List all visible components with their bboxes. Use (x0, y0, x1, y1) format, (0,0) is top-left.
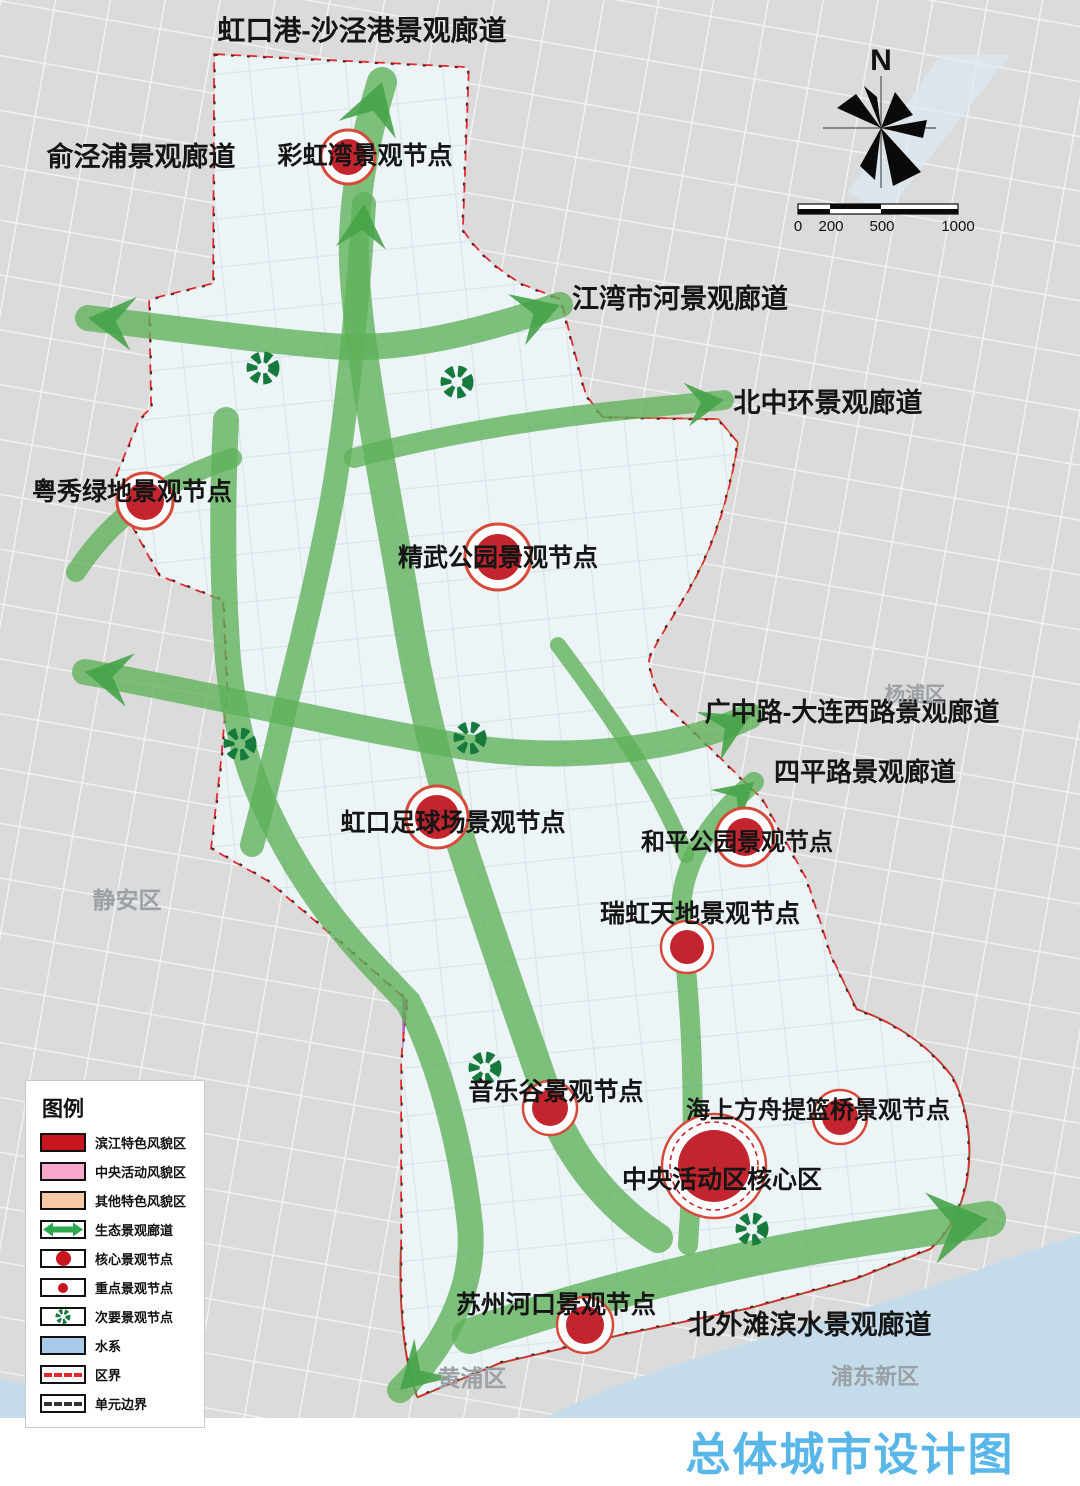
label-node-caihongwan: 彩虹湾景观节点 (277, 141, 452, 170)
label-node-ruihong: 瑞虹天地景观节点 (600, 899, 800, 928)
core-node-icon (56, 1251, 71, 1266)
water-swatch (40, 1336, 86, 1355)
label-node-yinyuegu: 音乐谷景观节点 (468, 1077, 643, 1106)
riverside-zone-swatch (40, 1133, 86, 1152)
label-node-heping-park: 和平公园景观节点 (641, 829, 833, 856)
legend-item-eco-corridor: 生态景观廊道 (40, 1220, 196, 1239)
label-node-hongkou-stadium: 虹口足球场景观节点 (340, 808, 565, 837)
label-node-yuexiu: 粤秀绿地景观节点 (32, 477, 232, 506)
page: 虹口港-沙泾港景观廊道 俞泾浦景观廊道 彩虹湾景观节点 江湾市河景观廊道 北中环… (0, 0, 1080, 1486)
key-node-swatch (40, 1278, 86, 1297)
eco-corridor-swatch (40, 1220, 86, 1239)
label-district-huangpu: 黄浦区 (438, 1365, 507, 1391)
legend-title: 图例 (42, 1093, 196, 1123)
compass-north-label: N (870, 44, 892, 77)
legend-item-riverside-zone: 滨江特色风貌区 (40, 1133, 196, 1152)
label-corridor-beizhonghuan: 北中环景观廊道 (734, 387, 923, 418)
legend-item-water: 水系 (40, 1336, 196, 1355)
legend-item-core-node: 核心景观节点 (40, 1249, 196, 1268)
minor-node-swatch (40, 1307, 86, 1326)
label-corridor-siping: 四平路景观廊道 (774, 757, 956, 787)
district-boundary-swatch (40, 1365, 86, 1384)
label-district-yangpu: 杨浦区 (885, 682, 945, 706)
node-ruihong (661, 921, 713, 973)
scale-tick-0: 0 (794, 218, 802, 235)
legend-item-other-zone: 其他特色风貌区 (40, 1191, 196, 1210)
legend-item-label: 中央活动风貌区 (95, 1162, 186, 1181)
legend-item-central-zone: 中央活动风貌区 (40, 1162, 196, 1181)
label-node-jingwu: 精武公园景观节点 (398, 543, 598, 572)
legend-item-unit-boundary: 单元边界 (40, 1394, 196, 1413)
legend-item-label: 区界 (95, 1365, 121, 1384)
label-corridor-guangzhong-dalian: 广中路-大连西路景观廊道 (705, 697, 1000, 727)
label-corridor-jiangwan: 江湾市河景观廊道 (572, 283, 788, 314)
legend-item-label: 滨江特色风貌区 (95, 1133, 186, 1152)
legend-item-minor-node: 次要景观节点 (40, 1307, 196, 1326)
page-title: 总体城市设计图 (640, 1418, 1060, 1483)
label-corridor-hongkou-shajing: 虹口港-沙泾港景观廊道 (217, 14, 506, 46)
scale-tick-1000: 1000 (941, 218, 974, 235)
double-arrow-icon (43, 1222, 83, 1237)
other-zone-swatch (40, 1191, 86, 1210)
label-corridor-beiwaitan: 北外滩滨水景观廊道 (689, 1309, 932, 1340)
label-node-cbd-core: 中央活动区核心区 (622, 1165, 822, 1194)
legend-item-label: 次要景观节点 (95, 1307, 173, 1326)
red-dash-icon (44, 1373, 82, 1377)
central-zone-swatch (40, 1162, 86, 1181)
label-corridor-yujingpu: 俞泾浦景观廊道 (46, 141, 236, 172)
key-node-icon (58, 1283, 68, 1293)
legend-item-district-boundary: 区界 (40, 1365, 196, 1384)
legend-item-label: 水系 (95, 1336, 121, 1355)
label-node-suzhou-estuary: 苏州河口景观节点 (456, 1290, 656, 1319)
legend-item-label: 重点景观节点 (95, 1278, 173, 1297)
label-district-jingan: 静安区 (93, 887, 162, 913)
black-dash-icon (44, 1402, 82, 1406)
legend-item-label: 其他特色风貌区 (95, 1191, 186, 1210)
legend-item-label: 生态景观廊道 (95, 1220, 173, 1239)
scale-tick-200: 200 (818, 218, 843, 235)
pinwheel-icon (54, 1308, 72, 1325)
legend-item-label: 核心景观节点 (95, 1249, 173, 1268)
label-district-pudong: 浦东新区 (831, 1364, 919, 1389)
legend-item-label: 单元边界 (95, 1394, 147, 1413)
scale-bar: 0 200 500 1000 (794, 204, 975, 235)
unit-boundary-swatch (40, 1394, 86, 1413)
label-node-haishang-fangzhou: 海上方舟提篮桥景观节点 (686, 1096, 950, 1124)
scale-tick-500: 500 (869, 218, 894, 235)
legend-item-key-node: 重点景观节点 (40, 1278, 196, 1297)
core-node-swatch (40, 1249, 86, 1268)
legend-panel: 图例 滨江特色风貌区 中央活动风貌区 其他特色风貌区 生态景观廊道 核心景观节点… (25, 1080, 205, 1428)
